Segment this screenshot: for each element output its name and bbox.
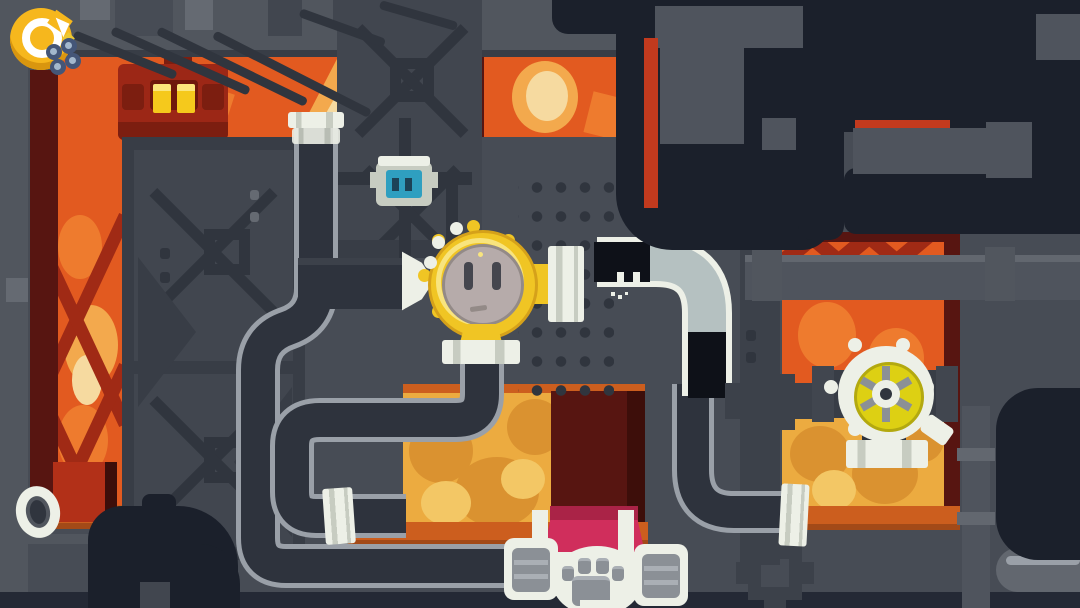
cat-whisker-dot (618, 295, 622, 299)
cat-eye (633, 272, 640, 284)
gear-tooth (824, 380, 838, 394)
feeder-pipe (298, 258, 406, 309)
panel-line (514, 560, 548, 565)
paw-toe (612, 566, 624, 581)
shadow-pipe (660, 40, 744, 144)
wheel-center-hole (880, 388, 892, 400)
plug-socket-slot (464, 262, 473, 290)
valve-wheel[interactable] (838, 346, 934, 442)
pipe-flange (292, 128, 340, 144)
game-stage (0, 0, 1080, 608)
valve-pipe-cap (936, 366, 958, 422)
panel-line (514, 574, 548, 579)
shadow-blob (996, 388, 1080, 560)
shadow-blob (798, 128, 844, 240)
cat-in-tube[interactable] (594, 262, 707, 398)
dice-dot-pin (69, 57, 76, 64)
machine-foot (580, 600, 612, 608)
gear-tooth (848, 338, 862, 352)
pipe-flange (778, 483, 809, 546)
paw-toe (596, 558, 609, 574)
dice-dot-pin (50, 48, 57, 55)
controls-icon[interactable] (44, 32, 86, 76)
plug-flange-right (548, 246, 584, 322)
cat-eye (617, 272, 624, 284)
valve-joint (741, 374, 795, 430)
plug-socket-slot (492, 262, 501, 290)
pipe-plug-run (292, 342, 482, 516)
cat-whisker-dot (625, 292, 628, 295)
cat-whisker-dot (611, 292, 615, 296)
panel-screen (512, 548, 550, 592)
valve-pipe-cap (812, 366, 834, 422)
dice-dot-pin (54, 63, 61, 70)
shadow-blob (142, 494, 176, 514)
shadow-pipe (762, 118, 796, 150)
gear-highlight (424, 256, 437, 269)
shadow-notch (140, 582, 170, 608)
pipe-bracket (986, 122, 1032, 178)
panel-screen (642, 554, 680, 598)
plug-character[interactable] (428, 228, 588, 368)
corner-pipe (1036, 14, 1080, 60)
plug-face (442, 244, 524, 326)
face-dot (478, 252, 483, 257)
valve-pedestal (846, 440, 928, 468)
paw-machine[interactable] (500, 490, 696, 608)
pipe-flange (288, 112, 344, 128)
shadow-blob (844, 168, 1080, 234)
plug-base-flange (442, 340, 520, 364)
panel-line (644, 580, 678, 585)
panel-line (644, 566, 678, 571)
pipe-coupling-white (322, 487, 356, 545)
shadow-blob (1030, 128, 1080, 174)
ember-edge (644, 38, 658, 208)
gear-highlight (432, 236, 445, 249)
gear-highlight (450, 222, 463, 235)
paw-toe (578, 558, 591, 574)
dice-dot-pin (65, 42, 72, 49)
